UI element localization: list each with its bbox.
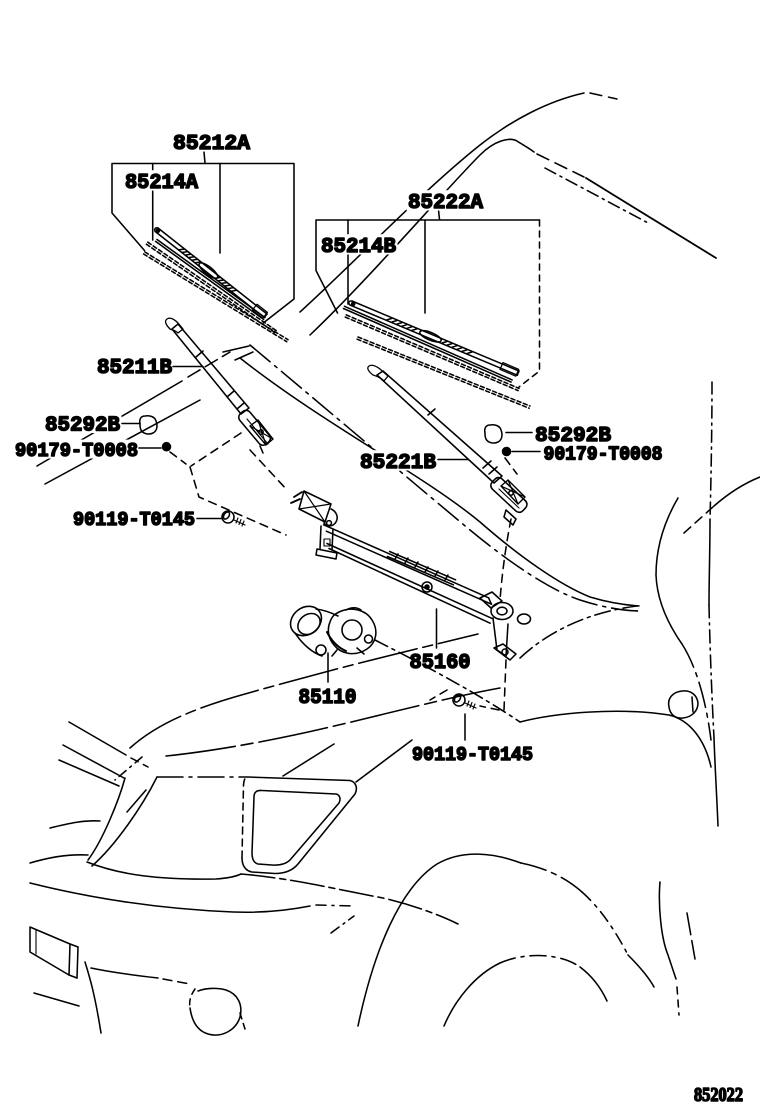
svg-text:85214A: 85214A: [125, 172, 198, 195]
svg-text:85214B: 85214B: [321, 236, 396, 259]
svg-text:85221B: 85221B: [360, 452, 436, 475]
svg-text:90179-T0008: 90179-T0008: [544, 444, 663, 466]
svg-text:85212A: 85212A: [173, 133, 250, 156]
svg-text:85110: 85110: [299, 687, 357, 710]
svg-text:90119-T0145: 90119-T0145: [412, 744, 533, 766]
svg-text:90119-T0145: 90119-T0145: [73, 509, 195, 531]
svg-text:85211B: 85211B: [97, 357, 172, 380]
svg-text:85292B: 85292B: [45, 415, 120, 438]
svg-text:852022: 852022: [694, 1085, 743, 1106]
svg-text:85222A: 85222A: [408, 192, 483, 215]
svg-text:85160: 85160: [410, 652, 471, 675]
svg-text:90179-T0008: 90179-T0008: [15, 440, 138, 462]
